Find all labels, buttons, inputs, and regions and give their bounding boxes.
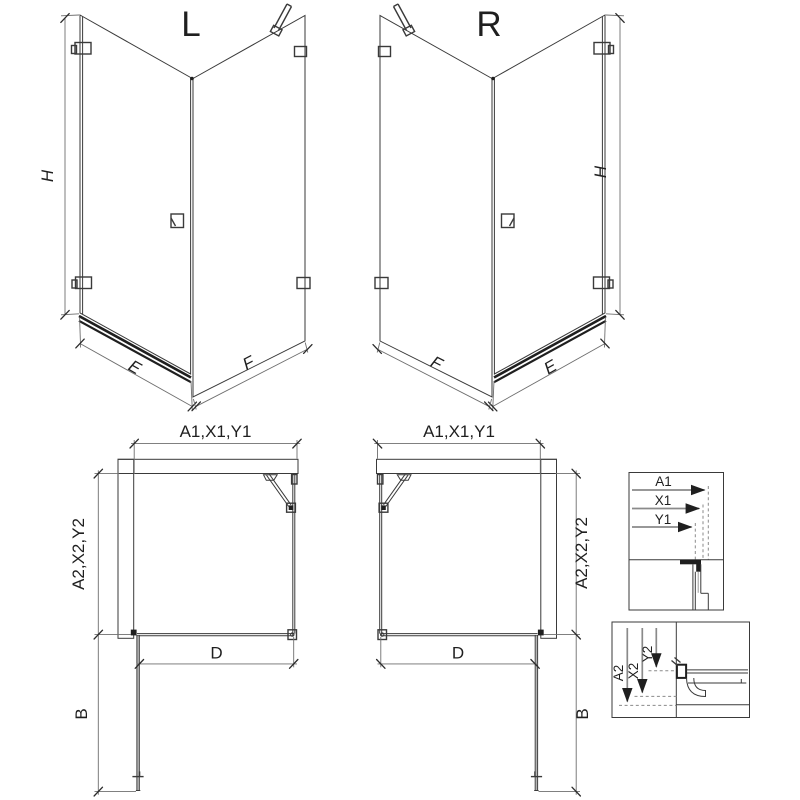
dim-label-a1x1y1-left: A1,X1,Y1 (180, 422, 252, 441)
wall-side-right-plan (541, 459, 557, 638)
labels: L H E F R H F E A1,X1,Y1 A2,X2,Y2 D B A1… (38, 5, 672, 720)
wall-top-left-plan (118, 459, 298, 473)
shower-enclosure-technical-drawing: L H E F R H F E A1,X1,Y1 A2,X2,Y2 D B A1… (0, 0, 800, 800)
dim-label-a2x2y2-right: A2,X2,Y2 (572, 517, 591, 589)
wall-side-left-plan (118, 459, 134, 638)
plan-view-right (373, 439, 580, 796)
dim-label-height-left: H (38, 169, 57, 182)
dim-label-d-left: D (210, 644, 222, 663)
detail-view-adjustment-top (629, 473, 724, 611)
detail-label-a1: A1 (655, 474, 672, 489)
iso-view-left (61, 4, 312, 411)
wall-top-right-plan (377, 459, 557, 473)
dim-label-a2x2y2-left: A2,X2,Y2 (69, 518, 88, 590)
dim-label-b-left: B (72, 708, 91, 719)
detail-label-a2: A2 (611, 665, 626, 682)
dim-label-f-right: F (428, 352, 447, 374)
detail-label-x2: X2 (626, 663, 641, 680)
detail-label-y1: Y1 (655, 512, 672, 527)
iso-view-right (373, 4, 624, 411)
dim-label-e-left: E (125, 356, 145, 378)
dim-label-b-right: B (573, 708, 592, 719)
variant-label-right: R (476, 5, 501, 44)
technical-drawing-page: L H E F R H F E A1,X1,Y1 A2,X2,Y2 D B A1… (0, 0, 800, 800)
detail-label-x1: X1 (655, 493, 672, 508)
plan-view-left (94, 439, 301, 796)
dim-label-a1x1y1-right: A1,X1,Y1 (423, 422, 495, 441)
dim-label-height-right: H (591, 165, 610, 178)
detail-label-y2: Y2 (640, 646, 655, 663)
dim-label-f-left: F (240, 352, 259, 374)
dim-label-d-right: D (452, 644, 464, 663)
dim-label-e-right: E (541, 356, 561, 378)
variant-label-left: L (181, 5, 200, 44)
